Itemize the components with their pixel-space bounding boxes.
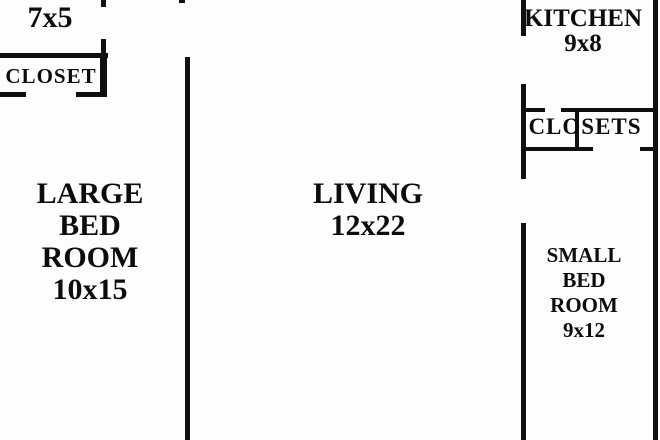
central-wall <box>185 57 190 440</box>
small-bedroom-size: 9x12 <box>524 318 644 343</box>
large-bedroom-line3: ROOM <box>20 242 160 274</box>
right-exterior-wall <box>653 0 658 440</box>
closets-name: CLOSETS <box>525 114 645 140</box>
bathroom-size: 7x5 <box>0 2 100 34</box>
large-bedroom-size: 10x15 <box>20 274 160 306</box>
living-room-size: 12x22 <box>298 210 438 242</box>
kitchen-size: 9x8 <box>523 31 643 56</box>
small-bedroom-label: SMALL BED ROOM 9x12 <box>524 243 644 343</box>
closet-label: CLOSET <box>0 64 102 88</box>
closets-top-wall-left <box>521 108 545 112</box>
closet-bottom-wall-right <box>76 92 107 97</box>
living-room-name: LIVING <box>298 178 438 210</box>
floor-plan: 7x5 CLOSET LARGE BED ROOM 10x15 LIVING 1… <box>0 0 660 440</box>
top-edge-wall-tick <box>179 0 185 3</box>
kitchen-name: KITCHEN <box>523 6 643 31</box>
kitchen-label: KITCHEN 9x8 <box>523 6 643 56</box>
large-bedroom-label: LARGE BED ROOM 10x15 <box>20 178 160 306</box>
living-room-label: LIVING 12x22 <box>298 178 438 242</box>
closet-bottom-wall-left <box>0 92 26 97</box>
closet-name: CLOSET <box>0 64 102 88</box>
closets-bottom-wall-right <box>640 147 656 151</box>
closets-bottom-wall-left <box>521 147 593 151</box>
large-bedroom-line1: LARGE <box>20 178 160 210</box>
small-bedroom-line1: SMALL <box>524 243 644 268</box>
closet-top-wall <box>0 53 108 58</box>
small-bedroom-line2: BED <box>524 268 644 293</box>
closets-label: CLOSETS <box>525 114 645 140</box>
bathroom-right-wall-upper <box>101 0 106 7</box>
small-bedroom-line3: ROOM <box>524 293 644 318</box>
bathroom-label: 7x5 <box>0 2 100 34</box>
large-bedroom-line2: BED <box>20 210 160 242</box>
